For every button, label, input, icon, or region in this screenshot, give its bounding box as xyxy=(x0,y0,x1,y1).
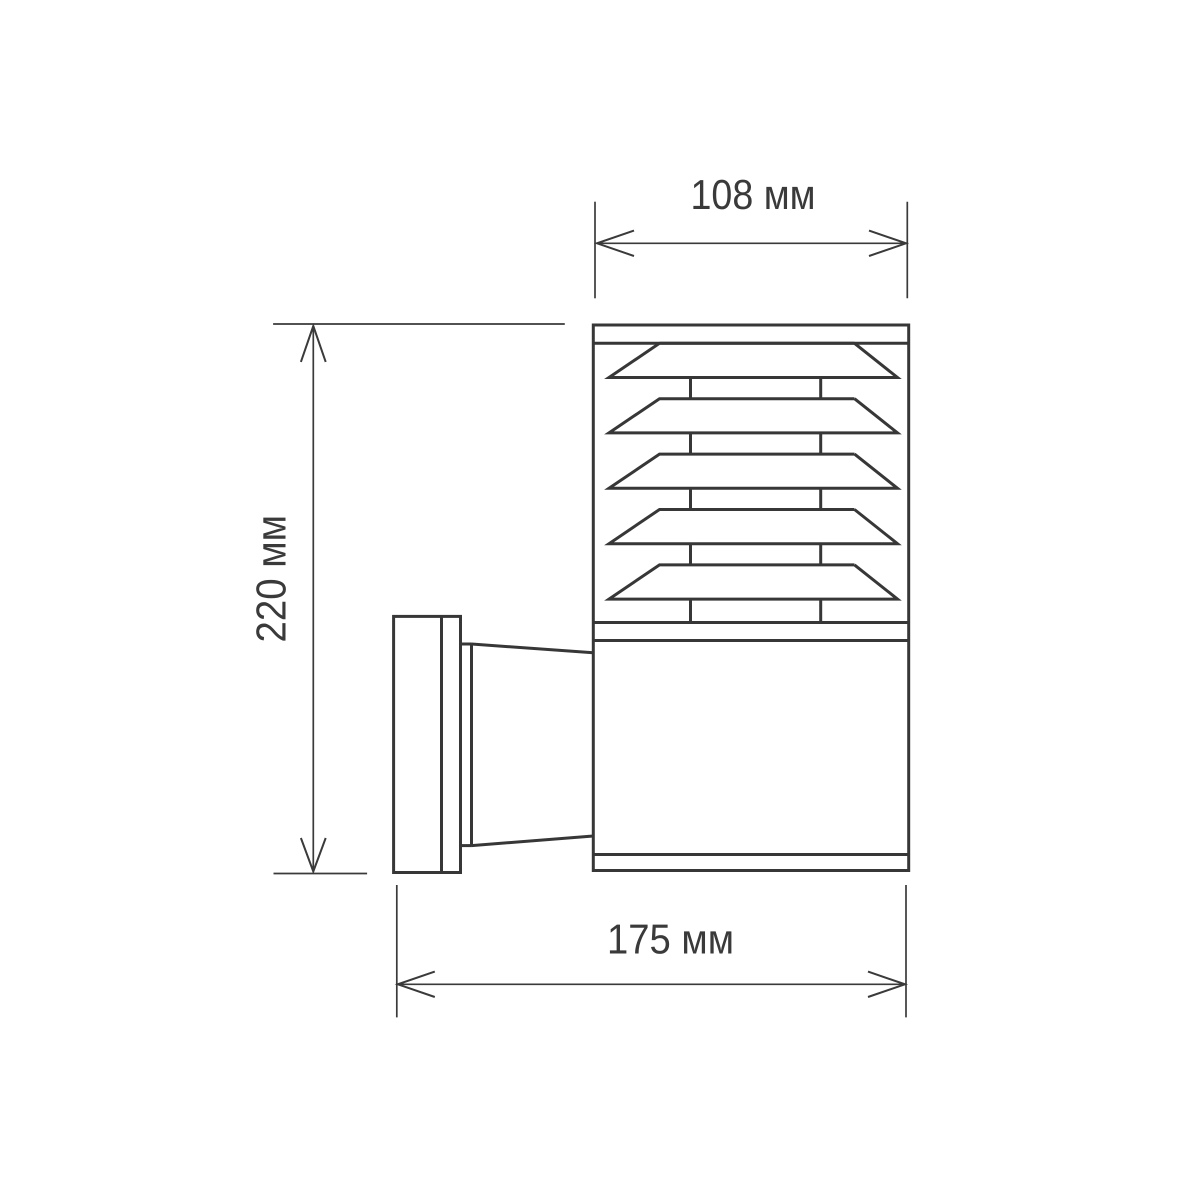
svg-text:220 мм: 220 мм xyxy=(248,515,295,643)
svg-text:108 мм: 108 мм xyxy=(691,171,816,218)
svg-text:175 мм: 175 мм xyxy=(607,916,734,963)
